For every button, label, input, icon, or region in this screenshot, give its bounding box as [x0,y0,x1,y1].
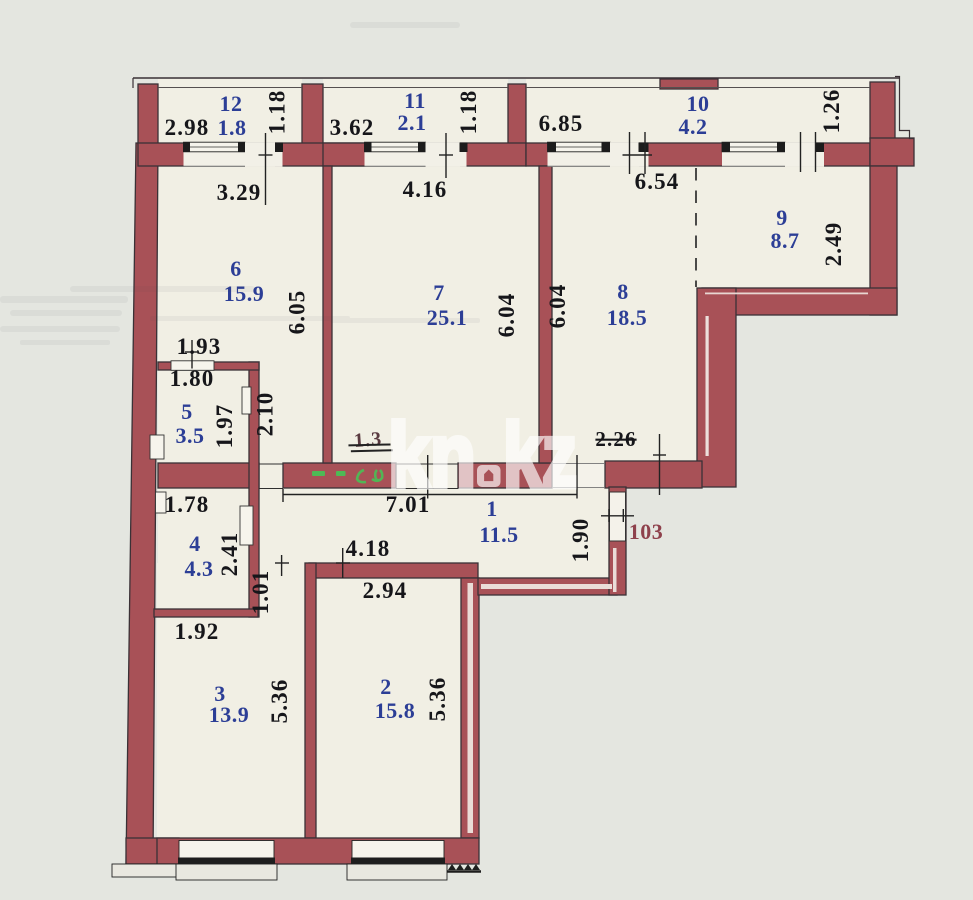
svg-text:2.98: 2.98 [165,115,210,140]
svg-text:7: 7 [433,280,445,305]
svg-text:6.04: 6.04 [494,293,519,338]
svg-text:1.18: 1.18 [456,90,481,135]
svg-text:4.16: 4.16 [403,177,448,202]
svg-text:kn: kn [388,405,476,507]
svg-text:15.8: 15.8 [375,698,416,723]
svg-text:4: 4 [189,531,201,556]
svg-text:5.36: 5.36 [425,677,450,722]
svg-text:4.2: 4.2 [679,114,708,139]
svg-text:2.41: 2.41 [217,532,242,577]
svg-text:8: 8 [617,279,629,304]
svg-text:11.5: 11.5 [479,522,518,547]
svg-text:5.36: 5.36 [267,679,292,724]
svg-text:2.94: 2.94 [363,578,408,603]
svg-text:3.62: 3.62 [330,115,375,140]
svg-text:2.49: 2.49 [821,222,846,267]
svg-text:15.9: 15.9 [224,281,265,306]
svg-text:12: 12 [220,91,243,116]
svg-text:2.1: 2.1 [398,110,427,135]
svg-text:103: 103 [629,519,664,544]
svg-text:6.54: 6.54 [635,169,680,194]
svg-text:1.26: 1.26 [819,89,844,134]
svg-text:2.26: 2.26 [595,427,636,451]
svg-text:1.18: 1.18 [265,90,290,135]
svg-text:3.29: 3.29 [217,180,262,205]
svg-text:5: 5 [181,399,193,424]
svg-text:1.92: 1.92 [175,619,220,644]
svg-text:1.90: 1.90 [568,518,593,563]
svg-text:9: 9 [776,205,788,230]
svg-text:6.85: 6.85 [539,111,584,136]
svg-text:1.80: 1.80 [170,366,215,391]
svg-text:10: 10 [687,91,710,116]
svg-text:6.04: 6.04 [545,284,570,329]
svg-text:1.78: 1.78 [165,492,210,517]
svg-text:6: 6 [230,256,242,281]
svg-text:kz: kz [503,405,577,507]
svg-text:2.10: 2.10 [253,392,278,437]
svg-text:1: 1 [486,496,498,521]
svg-text:18.5: 18.5 [607,305,648,330]
svg-text:25.1: 25.1 [427,305,468,330]
svg-text:1.93: 1.93 [177,334,222,359]
svg-text:8.7: 8.7 [771,228,800,253]
svg-text:6.05: 6.05 [285,290,310,335]
svg-text:1.01: 1.01 [248,570,273,615]
svg-text:4.18: 4.18 [346,536,391,561]
svg-text:2: 2 [380,674,392,699]
svg-text:13.9: 13.9 [209,702,250,727]
svg-text:4.3: 4.3 [185,556,214,581]
svg-text:1.3: 1.3 [353,428,383,452]
svg-text:1.8: 1.8 [218,115,247,140]
svg-text:3.5: 3.5 [176,423,205,448]
svg-text:1.97: 1.97 [212,404,237,449]
